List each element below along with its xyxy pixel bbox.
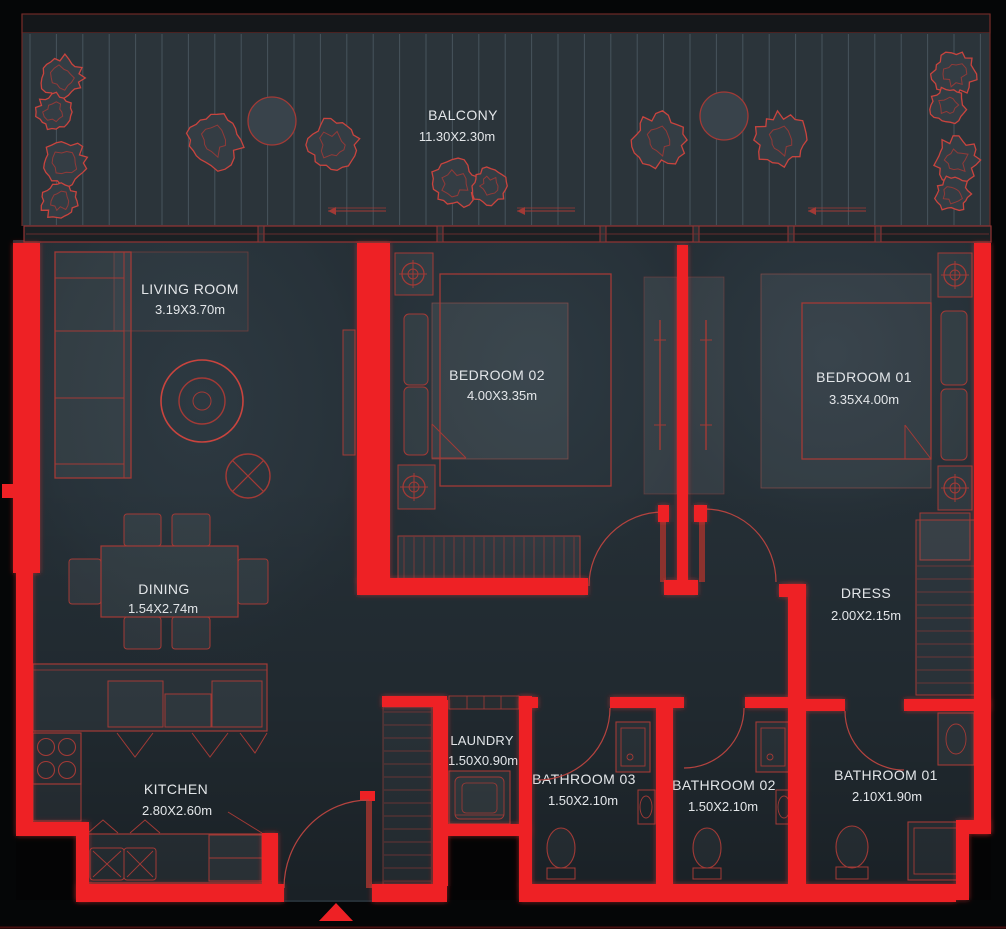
svg-text:LIVING ROOM: LIVING ROOM — [141, 281, 239, 297]
svg-text:4.00X3.35m: 4.00X3.35m — [467, 388, 537, 403]
svg-text:2.10X1.90m: 2.10X1.90m — [852, 789, 922, 804]
svg-text:1.50X0.90m: 1.50X0.90m — [448, 753, 518, 768]
svg-text:BEDROOM 02: BEDROOM 02 — [449, 367, 545, 383]
svg-text:DRESS: DRESS — [841, 585, 891, 601]
svg-text:KITCHEN: KITCHEN — [144, 781, 208, 797]
svg-text:1.54X2.74m: 1.54X2.74m — [128, 601, 198, 616]
svg-text:BATHROOM 02: BATHROOM 02 — [672, 777, 776, 793]
svg-text:11.30X2.30m: 11.30X2.30m — [419, 129, 495, 144]
svg-text:2.80X2.60m: 2.80X2.60m — [142, 803, 212, 818]
svg-text:3.19X3.70m: 3.19X3.70m — [155, 302, 225, 317]
svg-text:BATHROOM 01: BATHROOM 01 — [834, 767, 938, 783]
svg-text:1.50X2.10m: 1.50X2.10m — [548, 793, 618, 808]
svg-text:3.35X4.00m: 3.35X4.00m — [829, 392, 899, 407]
svg-text:1.50X2.10m: 1.50X2.10m — [688, 799, 758, 814]
svg-text:BALCONY: BALCONY — [428, 107, 498, 123]
svg-text:DINING: DINING — [138, 581, 189, 597]
svg-text:LAUNDRY: LAUNDRY — [450, 733, 513, 748]
svg-text:2.00X2.15m: 2.00X2.15m — [831, 608, 901, 623]
svg-text:BEDROOM 01: BEDROOM 01 — [816, 369, 912, 385]
